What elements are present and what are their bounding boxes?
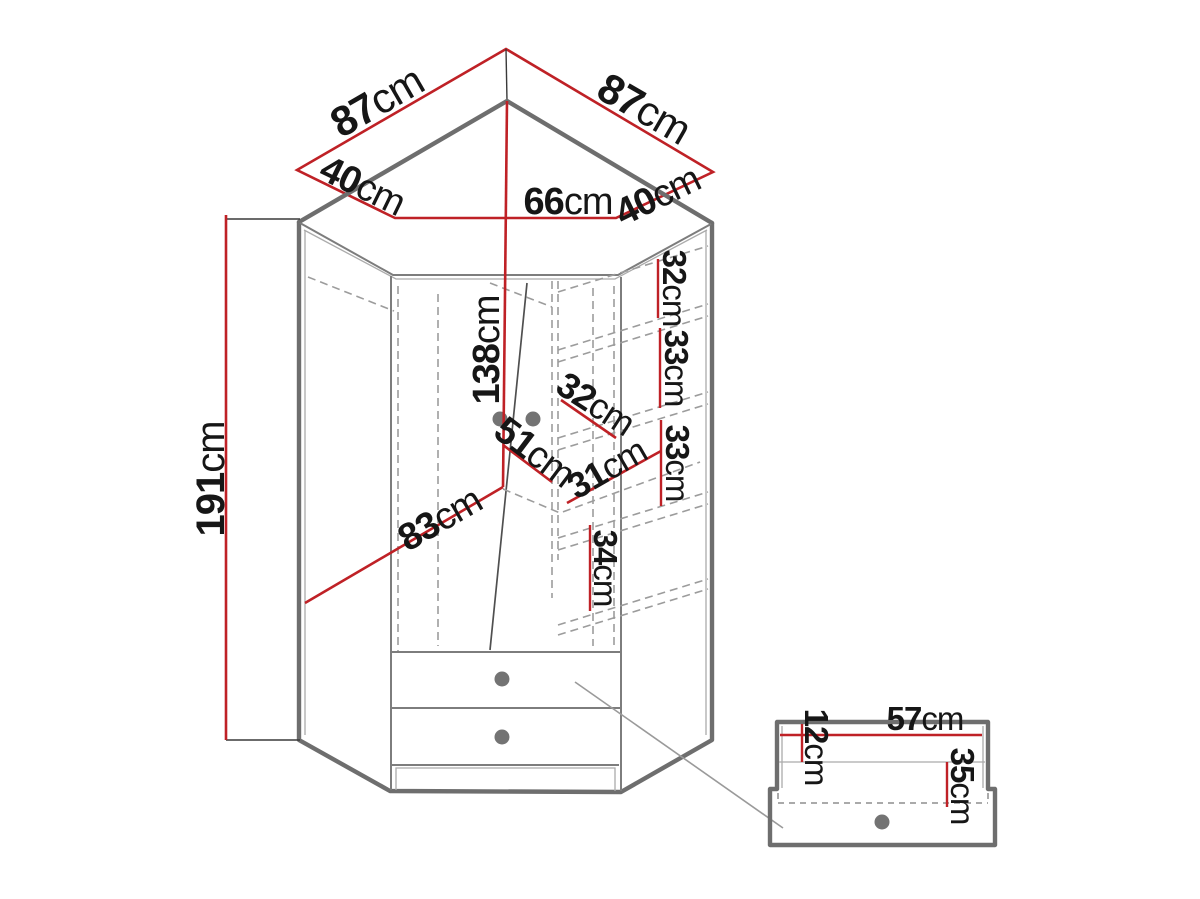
drawer-handle-top [495, 672, 510, 687]
wardrobe-dimension-drawing: 87cm 87cm 40cm 40cm 66cm 191cm 138cm 83c… [0, 0, 1200, 899]
dim-front-width-label: 83cm [391, 479, 489, 560]
dim-shelf-gap-top-label: 32cm [656, 250, 693, 327]
diagram-page: 87cm 87cm 40cm 40cm 66cm 191cm 138cm 83c… [0, 0, 1200, 899]
dim-plan-side-left-label: 40cm [313, 148, 411, 225]
dim-height-label: 191cm [189, 421, 233, 536]
shelf-line [558, 589, 708, 635]
drawer-handle-bottom [495, 730, 510, 745]
shelf-line [558, 504, 708, 550]
dim-drawer-top-inset-label: 12cm [798, 709, 835, 786]
dim-shelf-gap-middle-label: 33cm [658, 330, 695, 407]
dim-drawer-width-label: 57cm [887, 700, 964, 737]
dim-shelf-gap-bottom-label: 34cm [587, 530, 624, 607]
plinth-panel [396, 768, 615, 791]
dim-door-height-label: 138cm [466, 295, 508, 404]
plan-apex-extension-line [506, 49, 507, 101]
dim-shelf-gap-lower-label: 33cm [659, 425, 696, 502]
dim-plan-back-left-label: 87cm [322, 56, 431, 146]
detail-leader-line [575, 682, 783, 828]
dim-plan-back-right-label: 87cm [590, 63, 699, 153]
dim-drawer-depth-label: 35cm [944, 748, 981, 825]
interior-top-edge-left [308, 277, 394, 311]
detail-drawer-handle [875, 815, 890, 830]
shelf-line [558, 579, 708, 625]
dim-plan-front-label: 66cm [524, 181, 613, 223]
